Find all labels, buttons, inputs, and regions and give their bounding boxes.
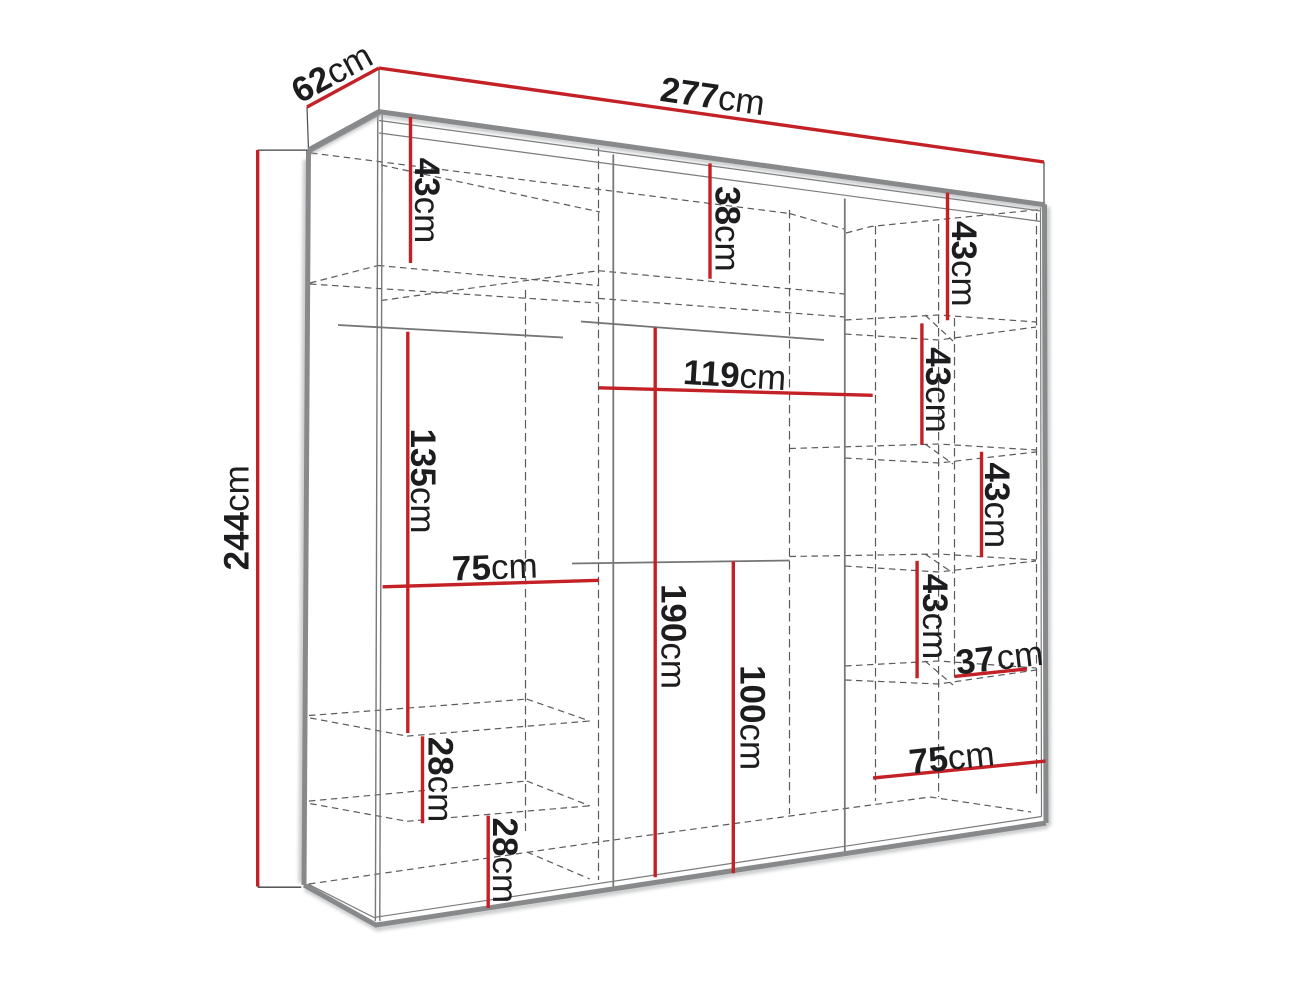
svg-text:28cm: 28cm	[485, 818, 524, 904]
svg-text:28cm: 28cm	[421, 737, 460, 823]
svg-text:119cm: 119cm	[682, 353, 787, 398]
svg-text:43cm: 43cm	[407, 158, 446, 244]
svg-text:43cm: 43cm	[918, 347, 957, 433]
svg-text:190cm: 190cm	[654, 584, 693, 689]
svg-text:38cm: 38cm	[707, 186, 746, 272]
svg-text:43cm: 43cm	[944, 221, 983, 307]
svg-text:244cm: 244cm	[218, 465, 257, 570]
svg-text:135cm: 135cm	[403, 428, 442, 533]
svg-text:75cm: 75cm	[451, 547, 538, 589]
svg-text:43cm: 43cm	[977, 463, 1016, 549]
svg-text:43cm: 43cm	[915, 574, 954, 660]
svg-text:100cm: 100cm	[732, 665, 771, 770]
